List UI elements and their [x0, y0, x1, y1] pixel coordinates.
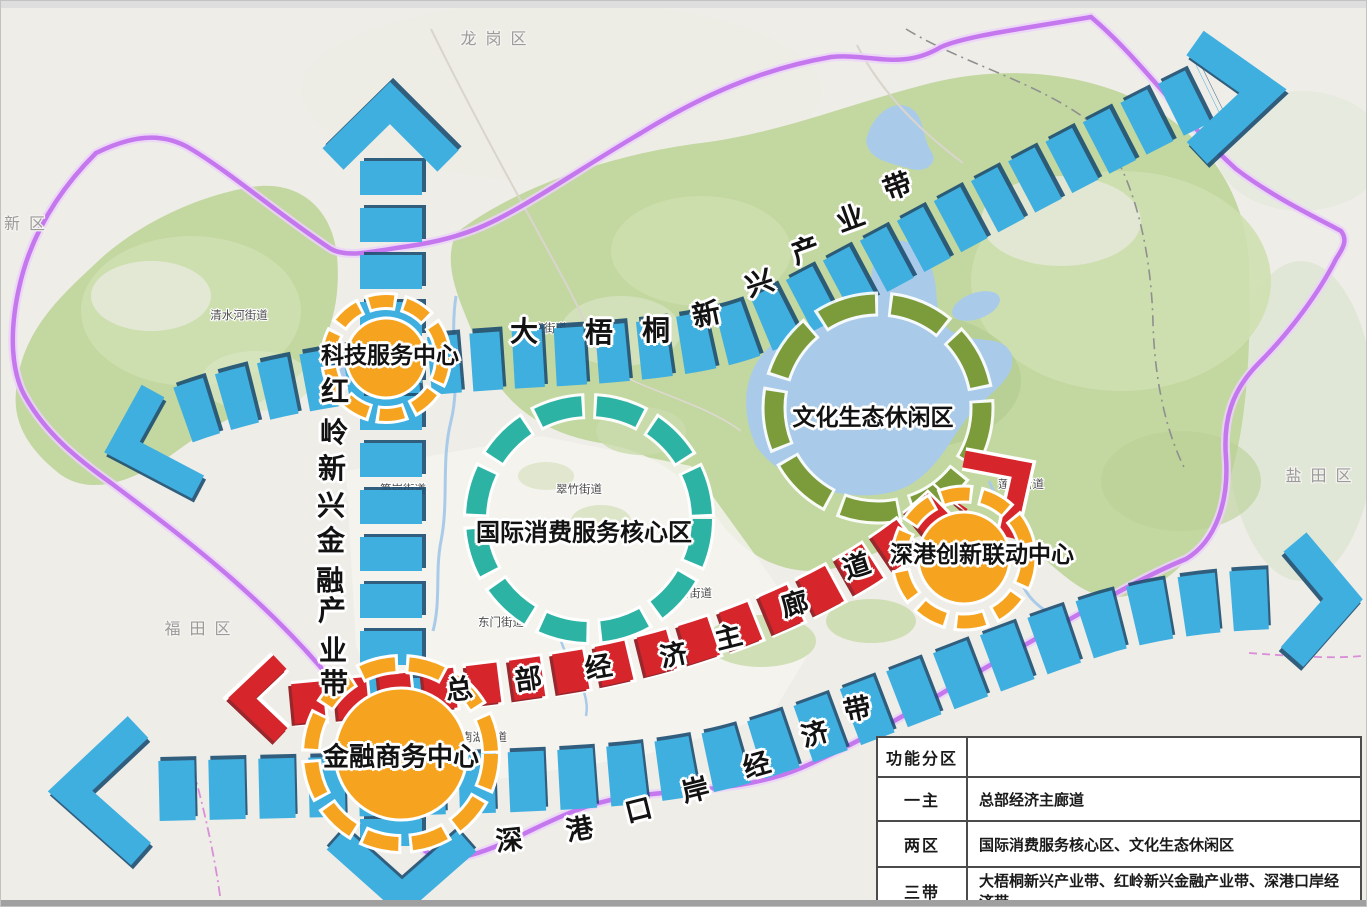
district-label-futian: 福田区 — [164, 619, 239, 638]
legend-key: 一主 — [878, 778, 968, 820]
street-label-cuizhu: 翠竹街道 — [556, 482, 602, 496]
legend-key: 两区 — [878, 822, 968, 866]
legend-header-row: 功能分区 — [878, 738, 1360, 776]
legend-value: 国际消费服务核心区、文化生态休闲区 — [968, 822, 1360, 866]
district-label-xinqu: 新区 — [4, 214, 54, 233]
legend-row-two-zones: 两区 国际消费服务核心区、文化生态休闲区 — [878, 820, 1360, 866]
district-label-yantian: 盐田区 — [1285, 466, 1360, 485]
center-tech-circle — [329, 301, 443, 415]
bottom-frame-strip — [1, 900, 1366, 906]
legend-header-empty — [968, 738, 1360, 776]
legend-row-one-main: 一主 总部经济主廊道 — [878, 776, 1360, 820]
district-label-longgang: 龙岗区 — [460, 29, 535, 48]
center-finance-circle — [311, 664, 491, 844]
top-frame-strip — [1, 1, 1366, 8]
planning-map: 清水河街道 东晓街道 翠竹街道 笋岗街道 东门街道 黄贝街道 南湖街道 莲塘街道… — [0, 0, 1367, 907]
legend-header: 功能分区 — [878, 738, 968, 776]
legend-table: 功能分区 一主 总部经济主廊道 两区 国际消费服务核心区、文化生态休闲区 三带 … — [876, 736, 1362, 907]
legend-value: 总部经济主廊道 — [968, 778, 1360, 820]
street-label-qingshuihe: 清水河街道 — [210, 308, 268, 322]
